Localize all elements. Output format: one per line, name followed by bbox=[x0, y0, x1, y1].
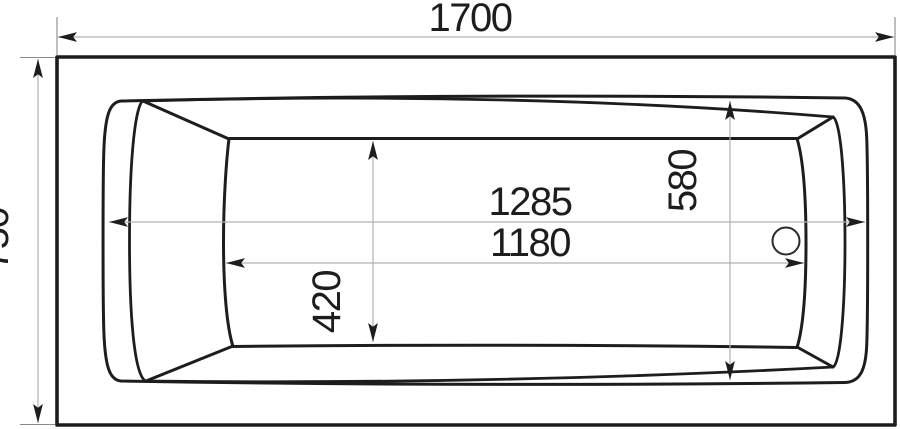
bathtub-drawing-page: 1700 750 1285 1180 580 420 bbox=[0, 0, 900, 429]
corner-slope-line-top-left bbox=[143, 101, 229, 139]
bathtub-top-view-drawing: 1700 750 1285 1180 580 420 bbox=[0, 0, 900, 429]
dimension-label-1180: 1180 bbox=[490, 221, 570, 265]
drain-hole bbox=[773, 228, 800, 255]
dimension-label-750: 750 bbox=[0, 208, 17, 270]
dimension-rim-opening-width: 580 bbox=[661, 101, 730, 380]
dimension-label-1700: 1700 bbox=[429, 0, 512, 40]
dimension-label-1285: 1285 bbox=[489, 180, 572, 224]
dimension-label-580: 580 bbox=[661, 150, 705, 212]
corner-slope-line-bottom-right bbox=[797, 347, 833, 367]
corner-slope-line-bottom-left bbox=[146, 346, 233, 381]
dimension-overall-length: 1700 bbox=[57, 0, 895, 55]
dimension-label-420: 420 bbox=[305, 271, 349, 333]
inner-wall-contour bbox=[130, 98, 846, 382]
dimension-floor-length: 1180 bbox=[226, 221, 804, 265]
corner-slope-line-top-right bbox=[797, 117, 833, 139]
dimension-floor-width: 420 bbox=[305, 141, 373, 342]
dimension-overall-width: 750 bbox=[0, 58, 55, 425]
